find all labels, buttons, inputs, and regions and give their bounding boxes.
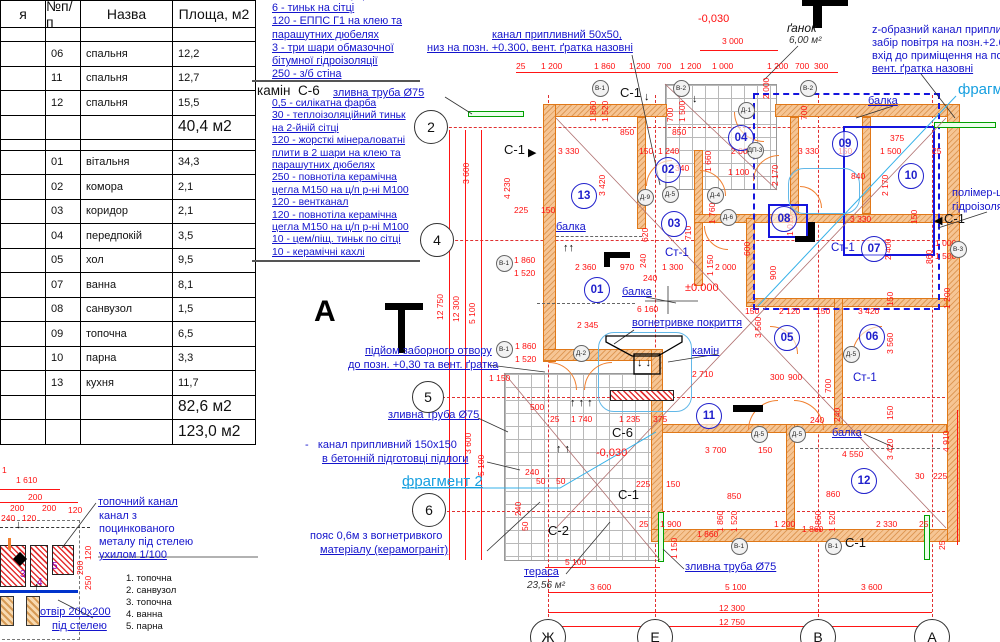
door-window-tag: Д-2 xyxy=(573,345,590,362)
door-window-tag: В-2 xyxy=(800,80,817,97)
door-window-tag: Д-5 xyxy=(751,426,768,443)
room-number-bubble: 01 xyxy=(584,277,610,303)
grid-axis-bubble: 5 xyxy=(412,381,444,413)
room-number-bubble: 11 xyxy=(696,403,722,429)
room-number-bubble: 07 xyxy=(861,236,887,262)
door-window-tag: В-1 xyxy=(592,80,609,97)
floor-plan: 251 2001 8601 2007001 2001 0001 20070030… xyxy=(0,0,1000,642)
room-number-bubble: 03 xyxy=(661,211,687,237)
room-number-bubble: 06 xyxy=(859,324,885,350)
grid-axis-bubble: Ж xyxy=(530,619,566,642)
grid-axis-bubble: 6 xyxy=(412,493,446,527)
grid-axis-bubble: 4 xyxy=(420,223,454,257)
door-window-tag: Д-5 xyxy=(789,426,806,443)
door-window-tag: В-1 xyxy=(496,341,513,358)
room-number-bubble: 02 xyxy=(655,157,681,183)
room-number-bubble: 08 xyxy=(771,206,797,232)
door-window-tag: В-1 xyxy=(825,538,842,555)
grid-axis-bubble: 2 xyxy=(414,110,448,144)
door-window-tag: Д-5 xyxy=(662,186,679,203)
door-window-tag: В-2 xyxy=(673,80,690,97)
door-window-tag: Д-1 xyxy=(738,102,755,119)
room-number-bubble: 12 xyxy=(851,468,877,494)
room-number-bubble: 13 xyxy=(571,183,597,209)
grid-axis-bubble: А xyxy=(914,619,950,642)
door-window-tag: Д-6 xyxy=(720,209,737,226)
door-window-tag: Д-5 xyxy=(843,346,860,363)
door-window-tag: В-1 xyxy=(496,255,513,272)
grid-axis-bubble: Е xyxy=(637,619,673,642)
door-window-tag: Д-9 xyxy=(637,189,654,206)
door-window-tag: В-3 xyxy=(950,241,967,258)
plan-bubble-layer: 010203040506070809101112132456ЖЕВАВ-1В-1… xyxy=(0,0,1000,642)
room-number-bubble: 05 xyxy=(774,325,800,351)
door-window-tag: ДП-3 xyxy=(747,142,764,159)
room-number-bubble: 09 xyxy=(832,131,858,157)
door-window-tag: Д-4 xyxy=(707,187,724,204)
door-window-tag: В-1 xyxy=(731,538,748,555)
drawing-sheet: я№п/пНазваПлоща, м206спальня12,211спальн… xyxy=(0,0,1000,642)
grid-axis-bubble: В xyxy=(800,619,836,642)
room-number-bubble: 10 xyxy=(898,163,924,189)
